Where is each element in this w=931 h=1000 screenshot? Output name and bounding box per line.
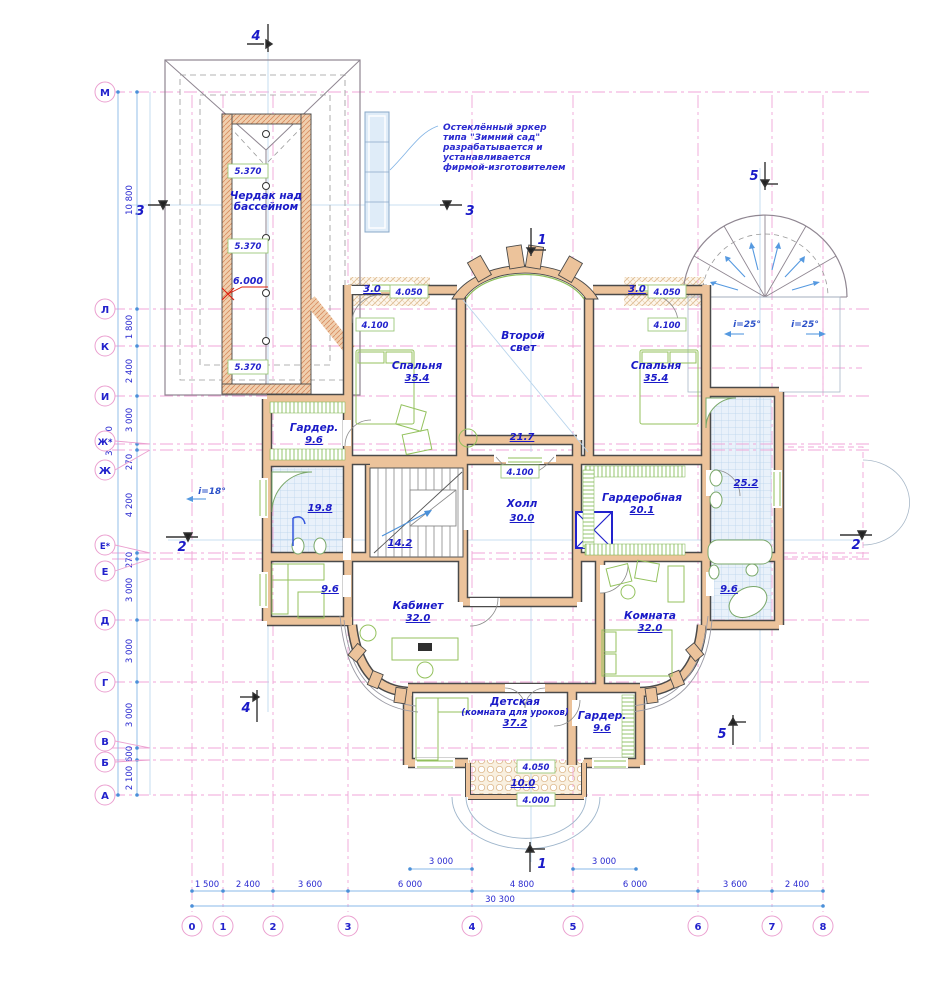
row-dim-b-a: 2 100 bbox=[125, 766, 135, 790]
balcony-left-level: 4.050 bbox=[395, 288, 423, 298]
balcony-right-area: 3.0 bbox=[628, 284, 646, 295]
second-light-name-2: свет bbox=[510, 342, 537, 354]
section-3-right: 3 bbox=[465, 204, 474, 219]
right-terrace-steps bbox=[863, 460, 910, 545]
upper-balcony-area: 21.7 bbox=[510, 432, 535, 443]
slope-right-1: i=25° bbox=[733, 320, 761, 330]
bedroom-left-level: 4.100 bbox=[361, 321, 389, 331]
nursery-sub: (комната для уроков) bbox=[461, 708, 569, 718]
bedroom-left-area: 35.4 bbox=[405, 373, 430, 384]
col-total: 30 300 bbox=[485, 895, 515, 905]
note-line-3: разрабатывается и bbox=[442, 142, 543, 153]
axis-row-k: К bbox=[101, 342, 110, 353]
section-4-bottom: 4 bbox=[240, 701, 250, 716]
attic-name-2: бассейном bbox=[234, 201, 299, 213]
hall-name: Холл bbox=[506, 498, 538, 510]
nursery-area: 37.2 bbox=[503, 718, 528, 729]
bath-left-area: 19.8 bbox=[308, 503, 333, 514]
axis-row-m: М bbox=[100, 88, 110, 99]
axis-row-l: Л bbox=[101, 305, 109, 316]
axis-col-7: 7 bbox=[769, 922, 776, 933]
terrace-level-top: 4.050 bbox=[522, 763, 550, 773]
nursery-name: Детская bbox=[489, 696, 540, 708]
axis-row-e1: Е* bbox=[100, 542, 111, 552]
row-dim-d-g: 3 000 bbox=[125, 639, 135, 663]
bedroom-right-area: 35.4 bbox=[644, 373, 669, 384]
wardrobe-mid-name: Гардер. bbox=[290, 422, 338, 434]
bedroom-right-level: 4.100 bbox=[653, 321, 681, 331]
cabinet-name: Кабинет bbox=[393, 600, 445, 612]
section-5-top: 5 bbox=[749, 169, 758, 184]
row-dim-zh-e1: 4 200 bbox=[125, 493, 135, 517]
winter-garden-note: Остеклённый эркер типа "Зимний сад" разр… bbox=[390, 123, 566, 173]
col-dim-1-2: 2 400 bbox=[236, 880, 260, 890]
dressing-area: 20.1 bbox=[630, 505, 655, 516]
col-dim-0-1: 1 500 bbox=[195, 880, 219, 890]
section-2-right: 2 bbox=[851, 538, 860, 553]
axis-row-e: Е bbox=[102, 567, 109, 578]
axis-col-5: 5 bbox=[570, 922, 577, 933]
slope-left: i=18° bbox=[198, 487, 226, 497]
bedroom-right-name: Спальня bbox=[631, 360, 682, 372]
hall-level: 4.100 bbox=[506, 468, 534, 478]
terrace-area: 10.0 bbox=[511, 778, 536, 789]
second-light-name-1: Второй bbox=[501, 330, 545, 342]
row-dim-m-l: 10 800 bbox=[125, 185, 135, 215]
section-1-bottom: 1 bbox=[537, 857, 546, 872]
bath-small-right-area: 9.6 bbox=[720, 584, 738, 595]
axis-row-zh1: Ж* bbox=[98, 438, 113, 448]
room-small-left-area: 9.6 bbox=[321, 584, 339, 595]
row-dim-g-v: 3 000 bbox=[125, 703, 135, 727]
axis-row-d: Д bbox=[101, 616, 110, 627]
hall-area: 30.0 bbox=[510, 513, 535, 524]
col-dim-3-4: 6 000 bbox=[398, 880, 422, 890]
axis-col-4: 4 bbox=[469, 922, 476, 933]
local-dim-left: 3 000 bbox=[429, 857, 453, 867]
local-dim-right: 3 000 bbox=[592, 857, 616, 867]
winter-garden-glazing bbox=[365, 112, 389, 232]
slope-right-2: i=25° bbox=[791, 320, 819, 330]
terrace-level-bottom: 4.000 bbox=[522, 796, 550, 806]
room-right-name: Комната bbox=[624, 610, 676, 622]
axis-col-6: 6 bbox=[695, 922, 702, 933]
room-right-area: 32.0 bbox=[638, 623, 663, 634]
section-4-top: 4 bbox=[250, 29, 260, 44]
attic-level-2: 5.370 bbox=[235, 242, 262, 252]
axis-row-zh: Ж bbox=[99, 466, 112, 477]
cabinet-area: 32.0 bbox=[406, 613, 431, 624]
balcony-right-level: 4.050 bbox=[653, 288, 681, 298]
balcony-left-area: 3.0 bbox=[363, 284, 381, 295]
section-5-bottom: 5 bbox=[717, 727, 726, 742]
bottom-dimensions: 1 500 2 400 3 600 6 000 4 800 6 000 3 60… bbox=[190, 857, 825, 908]
row-dim-v-b: 600 bbox=[125, 746, 135, 762]
axis-row-i: И bbox=[101, 392, 109, 403]
col-dim-4-5: 4 800 bbox=[510, 880, 534, 890]
section-2-left: 2 bbox=[177, 540, 186, 555]
attic-level-3: 5.370 bbox=[235, 363, 262, 373]
note-line-4: устанавливается bbox=[443, 153, 531, 163]
axis-col-8: 8 bbox=[820, 922, 827, 933]
axis-row-a: А bbox=[101, 791, 109, 802]
note-line-2: типа "Зимний сад" bbox=[443, 133, 540, 143]
axis-col-1: 1 bbox=[220, 922, 227, 933]
axis-col-3: 3 bbox=[345, 922, 352, 933]
row-dim-e-d: 3 000 bbox=[125, 578, 135, 602]
col-dim-2-3: 3 600 bbox=[298, 880, 322, 890]
axis-row-g: Г bbox=[102, 678, 109, 689]
dressing-name: Гардеробная bbox=[602, 492, 682, 504]
axis-row-b: Б bbox=[101, 758, 109, 769]
col-dim-5-6: 6 000 bbox=[623, 880, 647, 890]
note-line-1: Остеклённый эркер bbox=[443, 123, 547, 133]
axis-col-0: 0 bbox=[189, 922, 196, 933]
row-axis-bubbles: М Л К И Ж* Ж Е* Е Д Г В Б А bbox=[95, 82, 150, 805]
bedroom-left-name: Спальня bbox=[392, 360, 443, 372]
bath-right-area: 25.2 bbox=[734, 478, 759, 489]
attic-level-1: 5.370 bbox=[235, 167, 262, 177]
floor-plan-sheet: Остеклённый эркер типа "Зимний сад" разр… bbox=[0, 0, 931, 1000]
row-dim-i-zh1: 3 000 bbox=[125, 408, 135, 432]
row-dim-k-i: 2 400 bbox=[125, 359, 135, 383]
axis-row-v: В bbox=[101, 737, 109, 748]
floor-plan-drawing: Остеклённый эркер типа "Зимний сад" разр… bbox=[0, 0, 931, 1000]
ridge-level: 6.000 bbox=[233, 276, 263, 287]
section-1-top: 1 bbox=[537, 233, 546, 248]
staircase bbox=[370, 468, 463, 557]
col-dim-6-7: 3 600 bbox=[723, 880, 747, 890]
wardrobe-bottom-area: 9.6 bbox=[593, 723, 611, 734]
axis-col-2: 2 bbox=[270, 922, 277, 933]
row-dim-l-k: 1 800 bbox=[125, 315, 135, 339]
stairs-area: 14.2 bbox=[388, 538, 413, 549]
row-dim-zh1-zh: 270 bbox=[125, 454, 135, 470]
note-line-5: фирмой-изготовителем bbox=[443, 163, 566, 173]
wardrobe-mid-area: 9.6 bbox=[305, 435, 323, 446]
col-axis-bubbles: 0 1 2 3 4 5 6 7 8 bbox=[182, 916, 833, 936]
wardrobe-bottom-name: Гардер. bbox=[578, 710, 626, 722]
col-dim-7-8: 2 400 bbox=[785, 880, 809, 890]
